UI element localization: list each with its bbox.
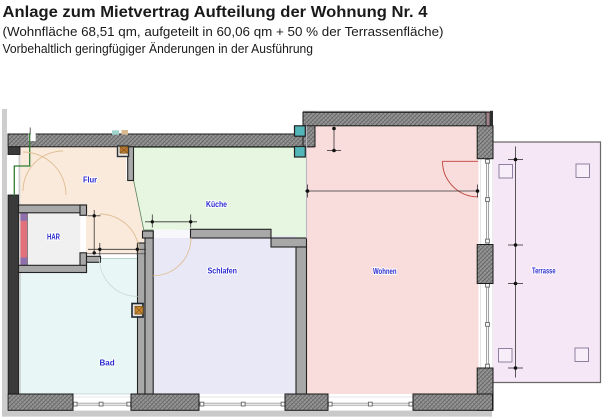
- svg-text:Flur: Flur: [83, 176, 98, 185]
- svg-text:Küche: Küche: [206, 200, 227, 209]
- svg-text:Anlage zum Mietvertrag Aufteil: Anlage zum Mietvertrag Aufteilung der Wo…: [3, 4, 428, 21]
- svg-text:Schlafen: Schlafen: [208, 267, 237, 276]
- svg-text:Vorbehaltlich geringfügiger Än: Vorbehaltlich geringfügiger Änderungen i…: [3, 41, 314, 56]
- svg-text:(Wohnfläche 68,51 qm, aufgetei: (Wohnfläche 68,51 qm, aufgeteilt in 60,0…: [3, 24, 444, 39]
- svg-text:Wohnen: Wohnen: [373, 267, 397, 276]
- svg-text:Bad: Bad: [100, 359, 115, 368]
- svg-text:HAR: HAR: [47, 233, 60, 242]
- svg-text:Terrasse: Terrasse: [532, 266, 556, 275]
